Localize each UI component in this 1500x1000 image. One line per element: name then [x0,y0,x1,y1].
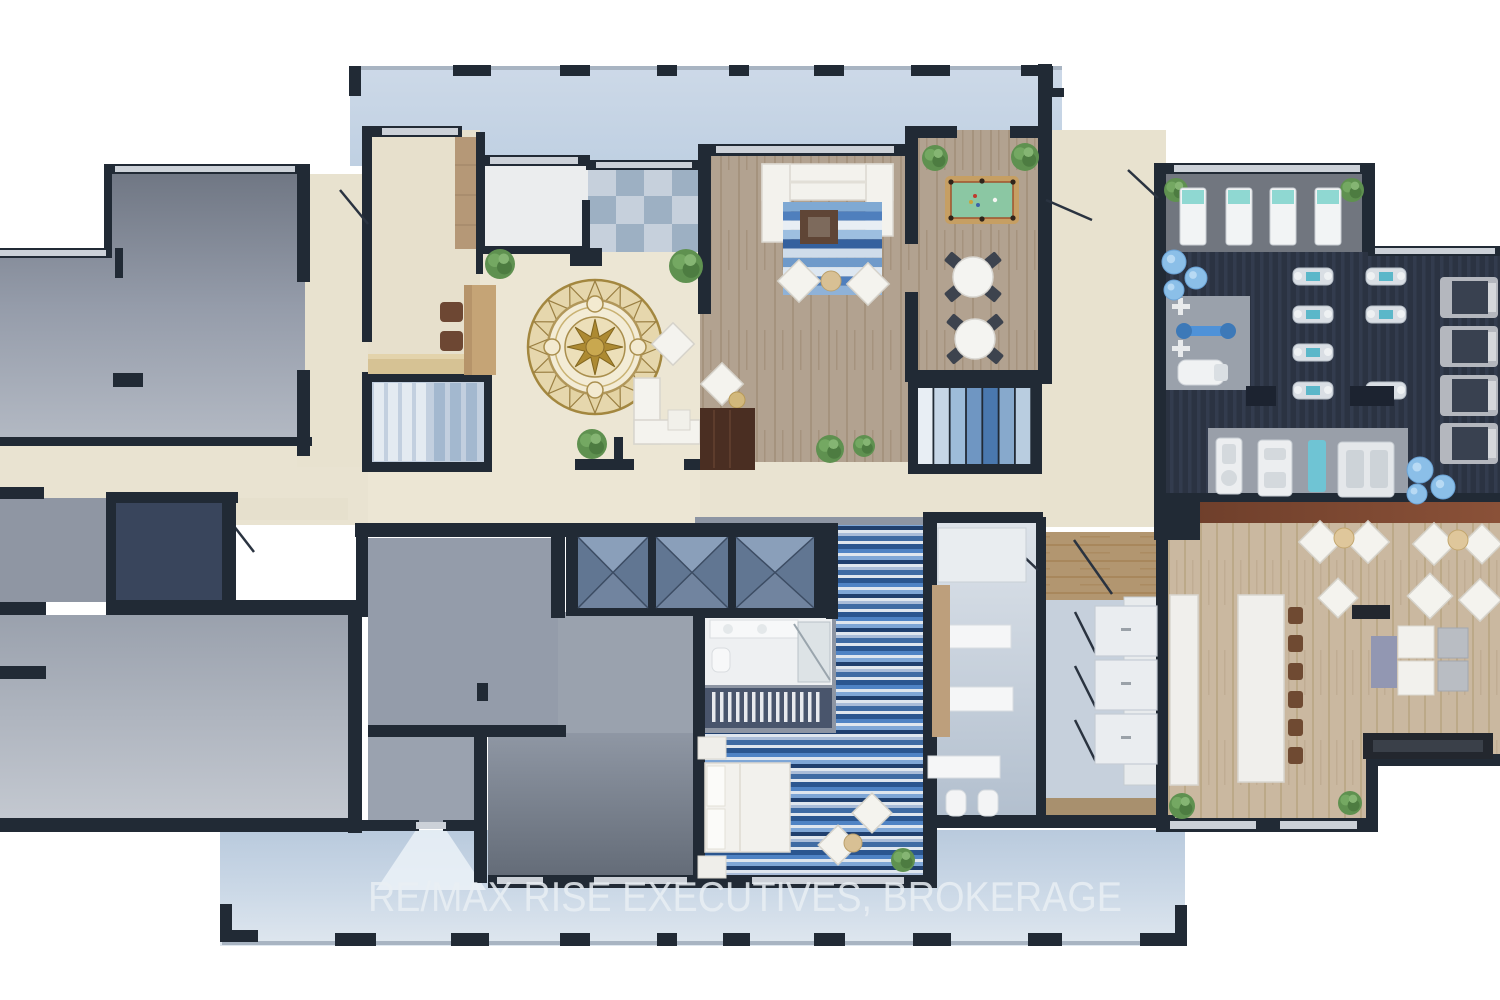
svg-text:RE/MAX RISE EXECUTIVES, BROKER: RE/MAX RISE EXECUTIVES, BROKERAGE [368,873,1122,920]
